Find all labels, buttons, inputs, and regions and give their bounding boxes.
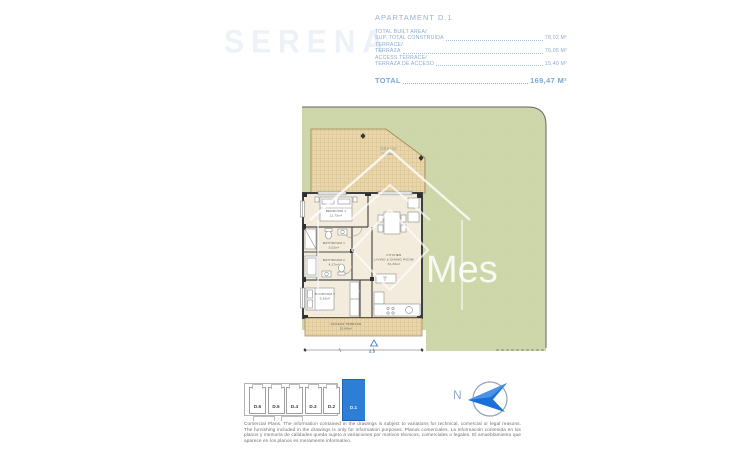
access-terrace-area: ACCESS TERRACE 15,40m² <box>305 318 422 336</box>
north-indicator: N <box>447 378 519 422</box>
brand-watermark: SERENA <box>224 25 391 62</box>
table-row: TOTAL BUILT AREA/ SUP. TOTAL CONSTRUIDA … <box>375 29 567 42</box>
keyplan-unit: D.5 <box>268 387 285 414</box>
center-watermark-text: Mes <box>426 249 498 291</box>
total-value: 169,47 M² <box>530 76 567 85</box>
row-value: 78,02 M² <box>545 35 567 41</box>
table-row: TERRACE/ TERRAZA 76,05 M² <box>375 42 567 55</box>
table-row: ACCESS TERRACE/ TERRAZA DE ACCESO 15,40 … <box>375 55 567 68</box>
bathroom2-label: BATHROOM 2 <box>323 258 345 262</box>
balcony-notch <box>252 384 263 389</box>
living-area-label: 31,36m² <box>388 262 401 266</box>
bathroom1-area-label: 3,52m² <box>329 246 340 250</box>
living-dining-label: LIVING & DINING ROOM <box>374 258 413 262</box>
balcony-notch <box>289 384 300 389</box>
unit-label: D.4 <box>291 404 298 409</box>
leader-dots <box>436 65 543 66</box>
keyplan-unit: D.4 <box>286 387 303 414</box>
leader-dots <box>403 53 543 54</box>
unit-label: D.3 <box>309 404 316 409</box>
floorplan-sheet: { "watermarks": { "brand": "SERENA", "ce… <box>0 0 756 456</box>
row-label-es: SUP. TOTAL CONSTRUIDA <box>375 35 444 41</box>
row-label-es: TERRAZA DE ACCESO <box>375 61 434 67</box>
bedroom1-label: BEDROOM 1 <box>326 209 346 213</box>
apartment-title: APARTAMENT D.1 <box>375 13 567 22</box>
bedroom1-area-label: 11,75m² <box>330 214 343 218</box>
balcony-notch <box>326 384 337 389</box>
keyplan-unit: D.2 <box>323 387 340 414</box>
access-terrace-area-label: 15,40m² <box>340 327 353 331</box>
keyplan-unit: D.6 <box>249 387 266 414</box>
keyplan-unit: D.3 <box>305 387 322 414</box>
kitchen-label: KITCHEN <box>387 253 402 257</box>
row-label-es: TERRAZA <box>375 48 401 54</box>
row-value: 15,40 M² <box>545 61 567 67</box>
unit-label: D.1 <box>350 405 357 410</box>
bedroom2-area-label: 9,35m² <box>320 297 331 301</box>
bathroom2-area-label: 4,17m² <box>329 263 340 267</box>
bathroom1-label: BATHROOM 1 <box>323 241 345 245</box>
leader-dots <box>403 83 528 84</box>
unit-label: D.6 <box>254 404 261 409</box>
unit-label: D.2 <box>328 404 335 409</box>
unit-locator-keyplan: D.6 D.5 D.4 D.3 D.2 D.1 <box>243 375 365 421</box>
area-summary-table: APARTAMENT D.1 TOTAL BUILT AREA/ SUP. TO… <box>375 13 567 85</box>
access-terrace-label: ACCESS TERRACE <box>330 322 361 326</box>
total-row: TOTAL 169,47 M² <box>375 76 567 85</box>
disclaimer-text: Comercial Plans. The information contain… <box>244 421 521 444</box>
balcony-notch <box>308 384 319 389</box>
unit-label: D.5 <box>272 404 279 409</box>
north-label: N <box>453 388 462 402</box>
balcony-notch <box>271 384 282 389</box>
floor-plan-drawing: TERRACE 76,05m² ACCESS TERRACE 15,40m² <box>288 98 558 363</box>
row-value: 76,05 M² <box>545 48 567 54</box>
total-label: TOTAL <box>375 76 401 85</box>
keyplan-unit-highlighted: D.1 <box>342 379 366 421</box>
leader-dots <box>446 40 543 41</box>
